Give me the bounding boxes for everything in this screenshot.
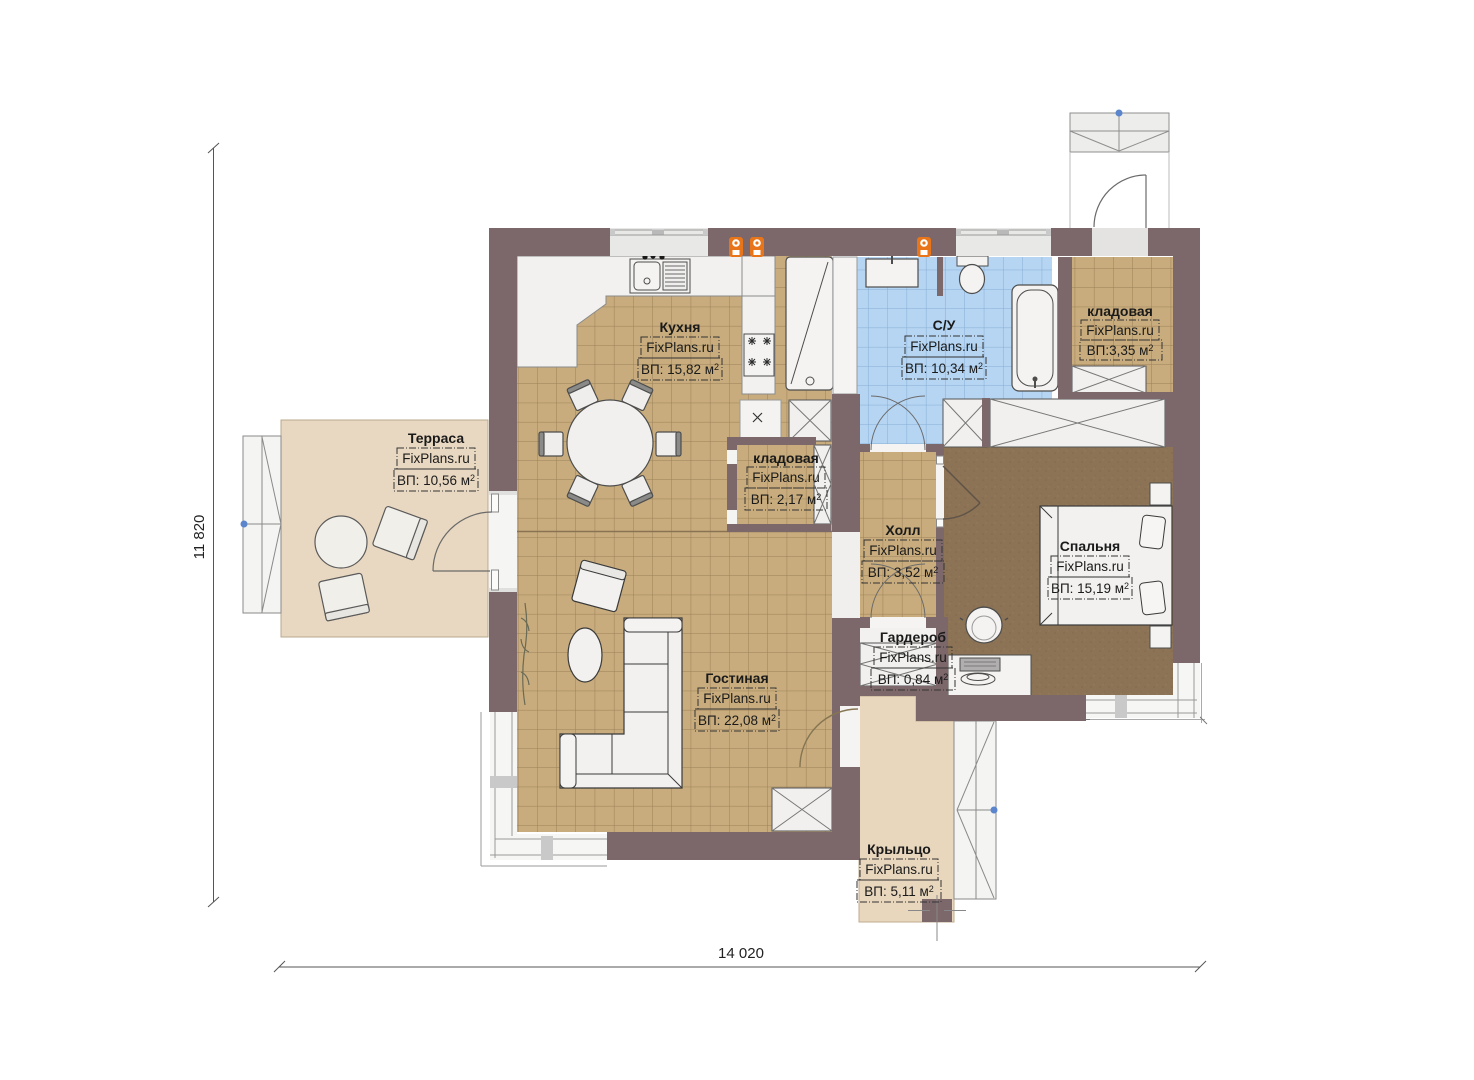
svg-text:ВП: 22,08 м2: ВП: 22,08 м2 <box>698 713 776 728</box>
svg-text:С/У: С/У <box>933 317 956 333</box>
svg-text:FixPlans.ru: FixPlans.ru <box>703 691 771 706</box>
svg-text:ВП:3,35 м2: ВП:3,35 м2 <box>1087 343 1154 358</box>
svg-text:ВП: 10,56 м2: ВП: 10,56 м2 <box>397 473 475 488</box>
svg-text:FixPlans.ru: FixPlans.ru <box>646 340 714 355</box>
svg-text:FixPlans.ru: FixPlans.ru <box>402 451 470 466</box>
svg-text:14 020: 14 020 <box>718 945 764 962</box>
svg-text:FixPlans.ru: FixPlans.ru <box>910 339 978 354</box>
svg-text:FixPlans.ru: FixPlans.ru <box>879 650 947 665</box>
svg-text:ВП: 0,84 м2: ВП: 0,84 м2 <box>878 672 949 687</box>
svg-text:кладовая: кладовая <box>1087 303 1153 319</box>
svg-text:ВП: 5,11 м2: ВП: 5,11 м2 <box>864 884 934 899</box>
svg-text:FixPlans.ru: FixPlans.ru <box>1056 559 1124 574</box>
svg-text:FixPlans.ru: FixPlans.ru <box>752 470 820 485</box>
svg-text:ВП: 10,34 м2: ВП: 10,34 м2 <box>905 361 983 376</box>
svg-text:Гостиная: Гостиная <box>705 670 768 686</box>
svg-text:Крыльцо: Крыльцо <box>867 841 931 857</box>
svg-text:ВП: 15,19 м2: ВП: 15,19 м2 <box>1051 581 1129 596</box>
svg-text:FixPlans.ru: FixPlans.ru <box>865 862 933 877</box>
svg-text:ВП: 3,52 м2: ВП: 3,52 м2 <box>868 565 939 580</box>
svg-text:ВП: 15,82 м2: ВП: 15,82 м2 <box>641 362 719 377</box>
svg-text:Спальня: Спальня <box>1060 538 1120 554</box>
svg-text:кладовая: кладовая <box>753 450 819 466</box>
svg-text:Гардероб: Гардероб <box>880 629 947 645</box>
svg-text:11 820: 11 820 <box>191 515 208 560</box>
svg-text:Холл: Холл <box>885 522 920 538</box>
svg-text:ВП: 2,17 м2: ВП: 2,17 м2 <box>751 492 822 507</box>
svg-text:Кухня: Кухня <box>660 319 701 335</box>
svg-text:FixPlans.ru: FixPlans.ru <box>1086 323 1154 338</box>
svg-text:Терраса: Терраса <box>408 430 464 446</box>
svg-text:FixPlans.ru: FixPlans.ru <box>869 543 937 558</box>
